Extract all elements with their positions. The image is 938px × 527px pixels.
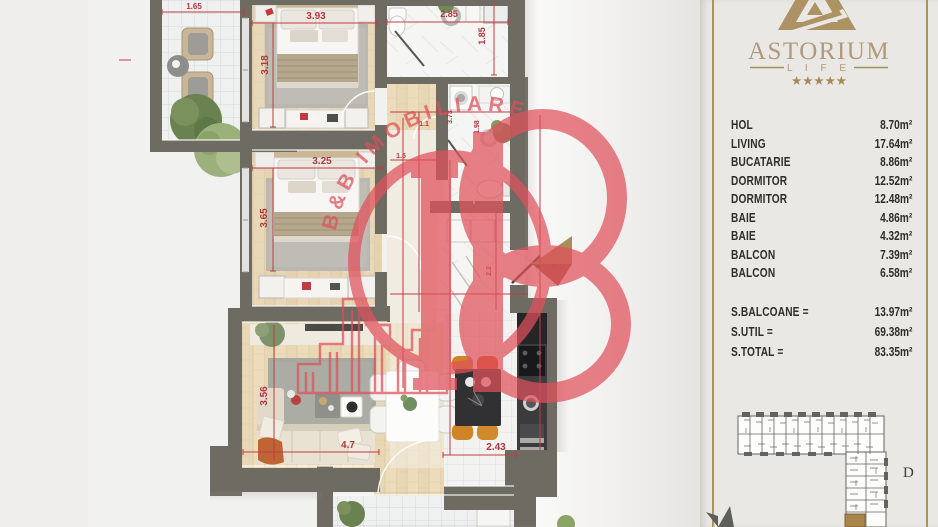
svg-text:2.43: 2.43	[486, 442, 506, 453]
svg-text:3.25: 3.25	[312, 156, 332, 167]
svg-text:1.65: 1.65	[186, 2, 202, 11]
svg-text:4.7: 4.7	[341, 440, 355, 451]
svg-text:L I F E: L I F E	[787, 63, 851, 74]
svg-text:2.85: 2.85	[440, 9, 458, 19]
svg-text:1.85: 1.85	[477, 27, 487, 45]
svg-text:3.56: 3.56	[259, 386, 270, 406]
svg-text:1.5: 1.5	[396, 153, 406, 160]
svg-text:1.98: 1.98	[474, 120, 481, 134]
svg-text:3.65: 3.65	[259, 208, 270, 228]
svg-text:★★★★★: ★★★★★	[791, 74, 847, 88]
svg-text:D: D	[903, 465, 914, 481]
svg-text:3.18: 3.18	[260, 55, 271, 75]
svg-text:3.93: 3.93	[306, 11, 326, 22]
svg-text:ASTORIUM: ASTORIUM	[748, 38, 890, 65]
